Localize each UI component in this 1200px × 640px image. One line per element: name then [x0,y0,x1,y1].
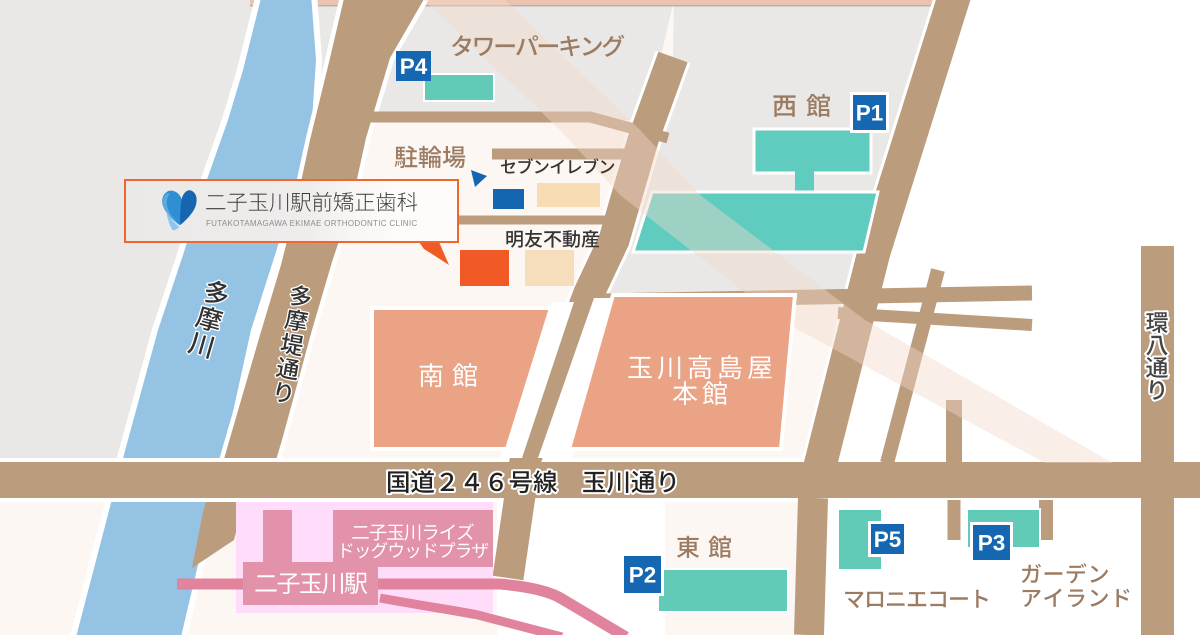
svg-text:P2: P2 [629,563,657,588]
svg-text:FUTAKOTAMAGAWA EKIMAE ORTHODON: FUTAKOTAMAGAWA EKIMAE ORTHODONTIC CLINIC [206,219,417,228]
svg-text:P5: P5 [874,527,902,552]
svg-text:P1: P1 [856,101,884,126]
svg-text:P4: P4 [400,54,428,79]
svg-text:P3: P3 [978,531,1006,556]
